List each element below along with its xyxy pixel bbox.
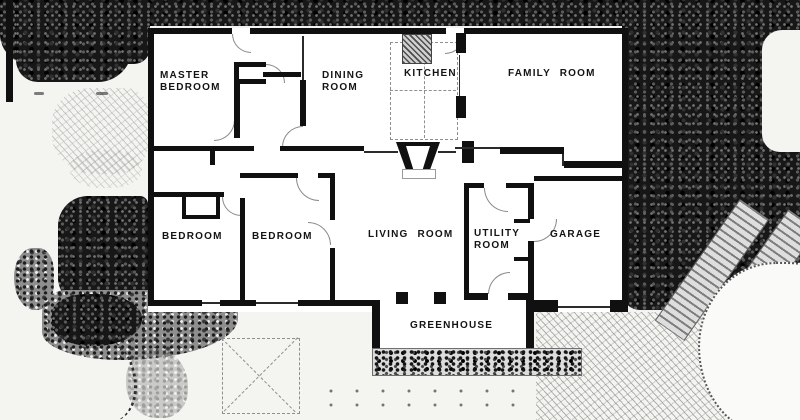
room-label-line: UTILITY: [474, 228, 520, 240]
ground-dots-south: [318, 384, 533, 414]
shrub-mass-west: [58, 196, 148, 304]
wall-segment: [462, 141, 474, 163]
wall-segment: [240, 173, 298, 178]
wall-segment: [298, 300, 332, 306]
room-label-living-room: LIVING ROOM: [368, 229, 453, 241]
wall-segment: [534, 176, 622, 181]
room-label-bedroom-west: BEDROOM: [162, 231, 223, 243]
wall-segment: [148, 146, 254, 151]
site-fence-line-west: [6, 0, 13, 102]
room-label-kitchen: KITCHEN: [404, 68, 457, 80]
wall-segment: [148, 192, 224, 197]
partition-line: [459, 55, 460, 96]
wall-segment: [234, 84, 240, 138]
wall-segment: [508, 293, 534, 300]
room-label-line: ROOM: [322, 82, 364, 94]
wall-segment: [330, 248, 335, 302]
hall-line: [438, 151, 456, 153]
room-label-utility-room: UTILITY ROOM: [474, 228, 520, 252]
wall-segment: [528, 241, 534, 300]
stair-hatch: [402, 34, 432, 64]
wall-segment: [514, 257, 530, 261]
wall-segment: [240, 198, 245, 302]
wall-segment: [148, 28, 154, 306]
wall-segment: [464, 183, 484, 188]
wall-segment: [300, 80, 306, 126]
greenhouse-post: [434, 292, 446, 304]
wall-segment: [456, 33, 466, 53]
wall-segment: [514, 219, 530, 223]
wall-segment: [464, 28, 628, 34]
window-line: [202, 302, 220, 304]
room-label-family-room: FAMILY ROOM: [508, 68, 596, 80]
room-label-line: ROOM: [474, 240, 520, 252]
ground-hatch-west-small: [70, 150, 142, 188]
greenhouse-post: [396, 292, 408, 304]
hall-line: [364, 151, 398, 153]
wall-segment: [456, 96, 466, 118]
tree-canopy-northwest-lobe: [16, 0, 132, 82]
wall-segment: [610, 300, 622, 312]
planting-bed: [372, 348, 582, 376]
room-label-greenhouse: GREENHOUSE: [410, 320, 493, 332]
wall-segment: [500, 147, 564, 154]
room-label-line: DINING: [322, 70, 364, 82]
wall-segment: [564, 161, 622, 168]
kitchen-counter-divider: [390, 90, 456, 92]
floor-plan-drawing: MASTER BEDROOM DINING ROOM KITCHEN FAMIL…: [0, 0, 800, 420]
wall-segment: [148, 300, 202, 306]
wall-segment: [622, 28, 628, 312]
clearing-east-edge: [762, 30, 800, 152]
wall-segment: [148, 28, 232, 34]
window-line: [256, 302, 298, 304]
garage-door-line: [558, 306, 610, 308]
room-label-master-bedroom: MASTER BEDROOM: [160, 70, 221, 94]
wall-segment: [464, 293, 488, 300]
room-label-dining-room: DINING ROOM: [322, 70, 364, 94]
wall-segment: [534, 300, 558, 312]
room-label-garage: GARAGE: [550, 229, 601, 241]
wall-segment: [526, 300, 534, 348]
wall-segment: [528, 183, 534, 219]
wall-segment: [182, 215, 220, 219]
wall-segment: [330, 300, 374, 306]
wall-segment: [280, 146, 364, 151]
partition-line: [302, 36, 304, 80]
wall-segment: [216, 197, 220, 219]
wall-segment: [210, 151, 215, 165]
wall-segment: [220, 300, 256, 306]
ground-mark: [96, 92, 108, 95]
room-label-bedroom-center: BEDROOM: [252, 231, 313, 243]
terrace-step-line: [455, 147, 502, 149]
wall-segment: [372, 300, 380, 348]
wall-segment: [330, 175, 335, 220]
ground-mark: [34, 92, 44, 95]
room-label-line: BEDROOM: [160, 82, 221, 94]
wall-segment: [263, 72, 301, 77]
room-label-line: MASTER: [160, 70, 221, 82]
wall-segment: [464, 183, 469, 293]
wall-segment: [250, 28, 446, 34]
fireplace-hearth: [402, 169, 436, 179]
